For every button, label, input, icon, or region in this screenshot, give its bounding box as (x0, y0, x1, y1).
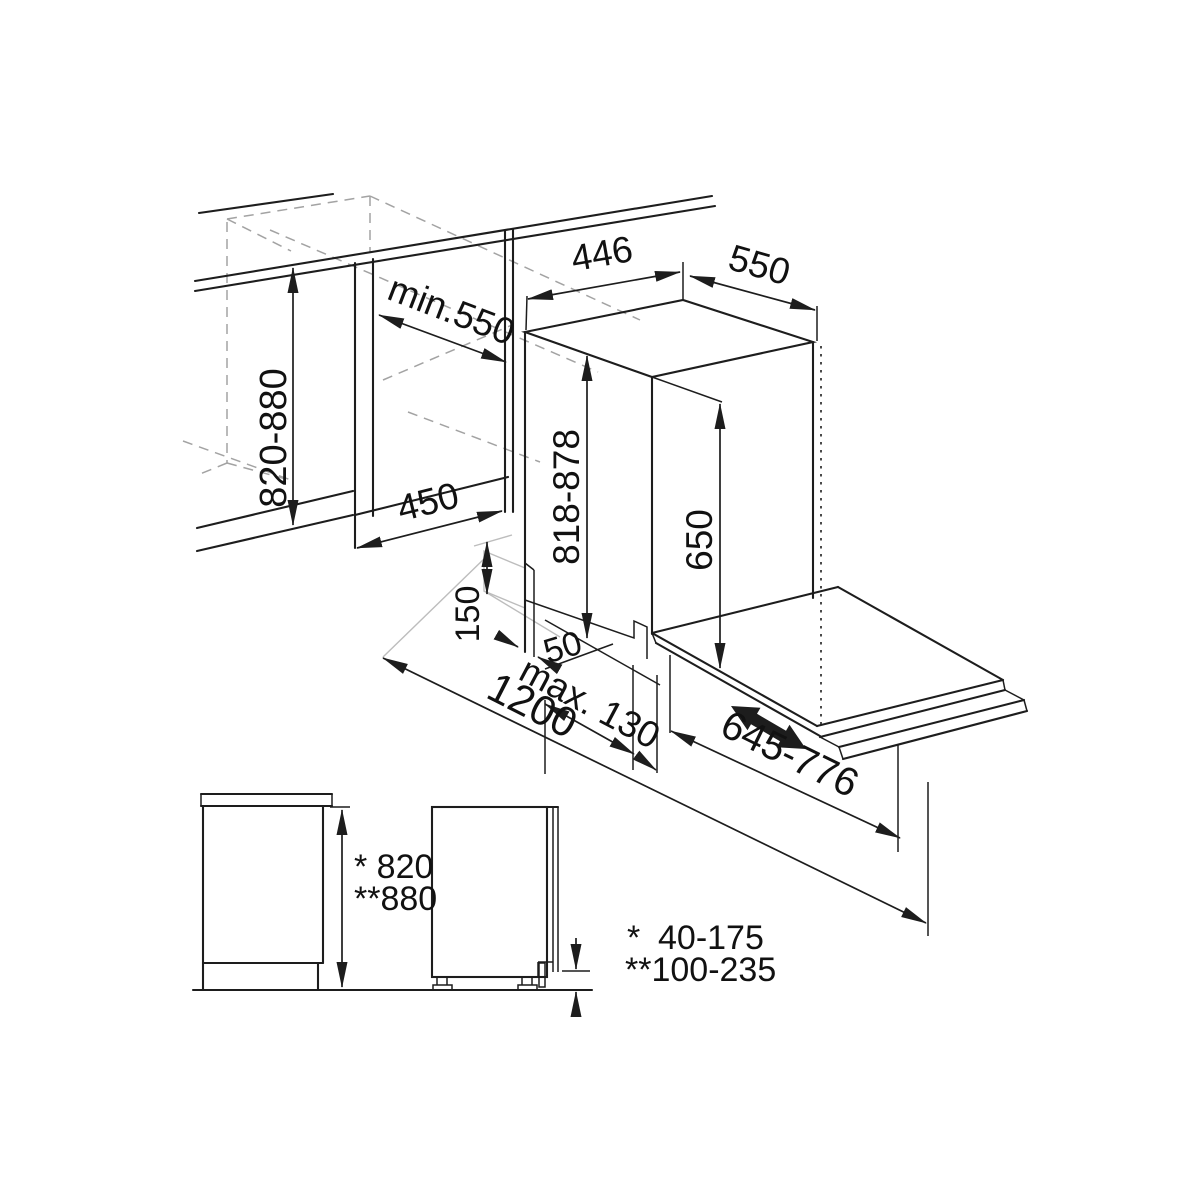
dim-unit-width: 446 (526, 228, 683, 330)
side-view-cabinet (201, 794, 332, 990)
plinth-strip-panel (484, 551, 525, 608)
legend-range-double-star: **100-235 (625, 951, 776, 989)
legend: * 40-175 **100-235 (625, 919, 776, 989)
worktop-front-bottom-edge (195, 206, 715, 291)
board1-cap (1003, 680, 1005, 690)
side-views: * 820 **880 (193, 794, 592, 1016)
board2-right-edge (1005, 690, 1024, 700)
dim-label-unit-width: 446 (568, 228, 636, 279)
dim-counter-height: 820-880 (253, 268, 295, 525)
dim-label-top-to-platform: 650 (679, 509, 720, 571)
gap-strip-top (525, 563, 534, 570)
dim-label-niche-depth: min.550 (383, 268, 521, 353)
dim-unit-depth: 550 (690, 237, 817, 341)
side-view-dishwasher (432, 807, 558, 990)
platform-right-edge (838, 587, 1003, 680)
board1-front-band (820, 690, 1005, 737)
installation-diagram-canvas: 820-880 min.550 446 550 450 818-878 (0, 0, 1200, 1200)
dim-label-side-height-double-star: **880 (354, 880, 437, 918)
door-bottom-panel (539, 963, 545, 987)
unit-top-face (525, 300, 813, 377)
dim-foot-height (562, 938, 590, 1016)
floor-projection-line-2 (484, 591, 560, 637)
board1-front-edge (817, 680, 1003, 726)
front-foot (433, 977, 452, 990)
installation-diagram-page: 820-880 min.550 446 550 450 818-878 (0, 0, 1200, 1200)
dim-niche-width: 450 (357, 475, 502, 548)
dim-label-unit-height: 818-878 (546, 429, 587, 565)
platform-back-edge (652, 587, 838, 633)
dim-side-height: * 820 **880 (330, 807, 437, 987)
board2-front-edge (839, 700, 1024, 747)
dim-label-plinth-height: 150 (449, 586, 487, 643)
board2-front-band (843, 711, 1027, 759)
board2-cap (1024, 700, 1027, 711)
rear-foot (518, 977, 537, 990)
dim-label-unit-depth: 550 (724, 237, 795, 293)
dim-niche-depth: min.550 (379, 268, 520, 362)
worktop-rear-edge (199, 194, 333, 213)
dim-unit-height: 818-878 (546, 356, 587, 638)
dim-label-niche-width: 450 (393, 475, 463, 530)
dim-plinth-height: 150 (449, 535, 512, 642)
cabinet-plinth-edge (197, 515, 353, 551)
dim-label-counter-height: 820-880 (253, 368, 295, 507)
pullout-platform (652, 587, 1027, 759)
